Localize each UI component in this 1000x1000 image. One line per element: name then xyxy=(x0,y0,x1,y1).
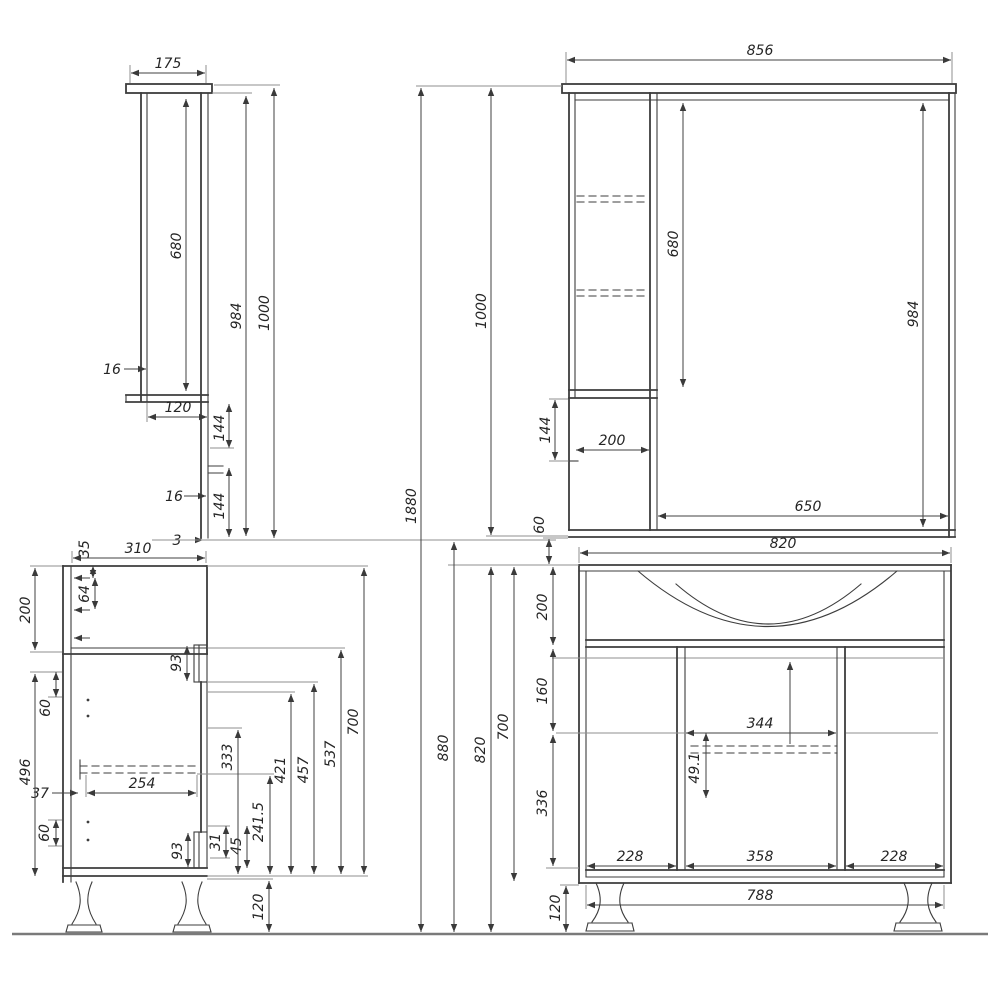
dim-label-200-side: 200 xyxy=(18,597,34,624)
dim-label-228-left: 228 xyxy=(617,849,644,865)
dim-label-310: 310 xyxy=(125,541,152,557)
dim-label-241-5: 241.5 xyxy=(251,802,267,842)
dim-label-700-side: 700 xyxy=(346,709,362,736)
dim-label-1880: 1880 xyxy=(404,488,420,524)
dim-label-16-wall: 16 xyxy=(103,362,121,378)
dim-label-93-upper: 93 xyxy=(169,654,185,672)
dim-label-254: 254 xyxy=(129,776,156,792)
dim-label-496: 496 xyxy=(18,759,34,786)
dim-label-200-front: 200 xyxy=(599,433,626,449)
dim-label-820-left: 820 xyxy=(473,737,489,764)
technical-drawing-page: 175 680 984 1000 16 120 144 16 144 3 xyxy=(0,0,1000,1000)
dim-label-984-front: 984 xyxy=(906,301,922,328)
dim-label-333: 333 xyxy=(220,744,236,771)
dim-label-3: 3 xyxy=(173,533,182,549)
dim-label-160: 160 xyxy=(535,678,551,705)
dim-label-45: 45 xyxy=(229,837,245,855)
dim-label-120-side: 120 xyxy=(165,400,192,416)
background xyxy=(0,0,1000,1000)
dim-label-64: 64 xyxy=(77,585,93,603)
dim-label-16-shelf: 16 xyxy=(165,489,183,505)
dim-label-31: 31 xyxy=(208,833,224,851)
dim-label-200-front-view: 200 xyxy=(535,594,551,621)
dim-label-358: 358 xyxy=(747,849,774,865)
dim-label-144-front: 144 xyxy=(538,417,554,444)
dim-label-60-lower: 60 xyxy=(37,824,53,842)
dim-label-35: 35 xyxy=(77,540,93,558)
dim-label-650: 650 xyxy=(795,499,822,515)
dim-label-336: 336 xyxy=(535,790,551,817)
dim-label-984-side: 984 xyxy=(229,303,245,330)
dim-label-144-lower: 144 xyxy=(212,493,228,520)
dim-label-37: 37 xyxy=(31,786,49,802)
dim-label-120-front-view: 120 xyxy=(548,895,564,922)
dim-label-120-side-view: 120 xyxy=(251,894,267,921)
dim-label-880: 880 xyxy=(436,735,452,762)
dim-label-93-lower: 93 xyxy=(170,842,186,860)
dim-label-457: 457 xyxy=(296,757,312,784)
dim-label-60-upper: 60 xyxy=(38,699,54,717)
dim-label-700-front: 700 xyxy=(496,714,512,741)
dim-label-1000-front: 1000 xyxy=(474,293,490,329)
dim-label-537: 537 xyxy=(323,741,339,768)
dim-label-421: 421 xyxy=(273,757,289,784)
dim-label-680-side: 680 xyxy=(169,233,185,260)
dim-label-1000-side: 1000 xyxy=(257,295,273,331)
dim-label-60-gap: 60 xyxy=(532,516,548,534)
dim-label-680-front: 680 xyxy=(666,231,682,258)
dim-label-856: 856 xyxy=(747,43,774,59)
dim-label-820-top: 820 xyxy=(770,536,797,552)
dim-label-788: 788 xyxy=(747,888,774,904)
dim-label-175: 175 xyxy=(155,56,182,72)
technical-drawing: 175 680 984 1000 16 120 144 16 144 3 xyxy=(0,0,1000,1000)
dim-label-144-upper: 144 xyxy=(212,415,228,442)
dim-label-228-right: 228 xyxy=(881,849,908,865)
dim-label-49-1: 49.1 xyxy=(687,752,703,783)
dim-label-344: 344 xyxy=(747,716,774,732)
